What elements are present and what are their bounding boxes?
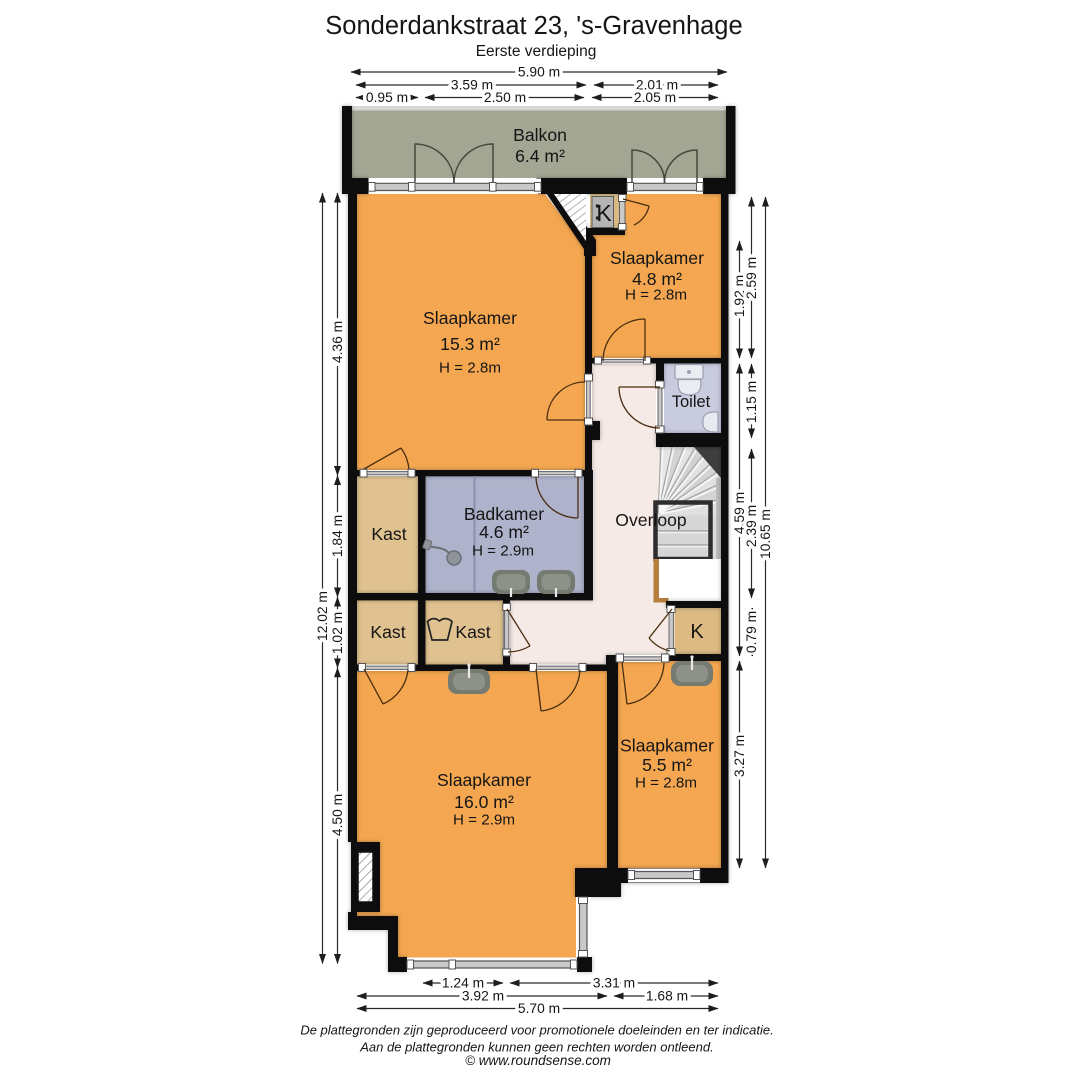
- svg-text:1.15 m: 1.15 m: [744, 381, 759, 423]
- svg-text:Sonderdankstraat 23, 's-Graven: Sonderdankstraat 23, 's-Gravenhage: [325, 12, 742, 40]
- svg-text:1.84 m: 1.84 m: [330, 515, 345, 557]
- svg-text:Toilet: Toilet: [672, 393, 711, 411]
- svg-text:Kast: Kast: [455, 622, 490, 642]
- svg-text:2.50 m: 2.50 m: [484, 90, 526, 105]
- svg-text:5.70 m: 5.70 m: [518, 1001, 560, 1016]
- svg-text:1.02 m: 1.02 m: [330, 612, 345, 654]
- svg-text:Eerste verdieping: Eerste verdieping: [476, 43, 597, 60]
- svg-text:Balkon: Balkon: [513, 125, 567, 145]
- svg-text:Slaapkamer: Slaapkamer: [423, 308, 517, 328]
- svg-text:Kast: Kast: [370, 622, 405, 642]
- svg-text:·0.79 m·: ·0.79 m·: [744, 606, 759, 657]
- svg-text:Kast: Kast: [371, 524, 406, 544]
- svg-text:2.59 m: 2.59 m: [744, 257, 759, 299]
- svg-text:5.5 m²: 5.5 m²: [642, 755, 692, 775]
- svg-text:15.3 m²: 15.3 m²: [440, 334, 500, 354]
- svg-text:1.68 m: 1.68 m: [646, 989, 688, 1004]
- svg-text:3.92 m: 3.92 m: [462, 989, 504, 1004]
- svg-text:3.31 m: 3.31 m: [593, 976, 635, 991]
- svg-text:2.39 m: 2.39 m: [744, 505, 759, 547]
- svg-text:Slaapkamer: Slaapkamer: [437, 770, 531, 790]
- svg-text:K: K: [690, 621, 704, 643]
- svg-text:6.4 m²: 6.4 m²: [515, 146, 565, 166]
- svg-text:2.05 m: 2.05 m: [634, 90, 676, 105]
- svg-text:H = 2.8m: H = 2.8m: [635, 775, 697, 792]
- svg-text:Slaapkamer: Slaapkamer: [620, 736, 714, 756]
- svg-text:K: K: [596, 200, 612, 226]
- svg-text:4.50 m: 4.50 m: [330, 794, 345, 836]
- svg-text:H = 2.9m: H = 2.9m: [453, 812, 515, 829]
- svg-text:Badkamer: Badkamer: [464, 504, 544, 524]
- svg-text:10.65 m: 10.65 m: [758, 509, 773, 559]
- svg-text:De plattegronden zijn geproduc: De plattegronden zijn geproduceerd voor …: [300, 1023, 773, 1038]
- svg-text:0.95 m: 0.95 m: [366, 90, 408, 105]
- svg-text:Slaapkamer: Slaapkamer: [610, 248, 704, 268]
- svg-text:H = 2.8m: H = 2.8m: [625, 287, 687, 304]
- svg-text:H = 2.9m: H = 2.9m: [472, 543, 534, 560]
- svg-text:5.90 m: 5.90 m: [518, 65, 560, 80]
- svg-text:© www.roundsense.com: © www.roundsense.com: [465, 1053, 611, 1068]
- svg-text:16.0 m²: 16.0 m²: [454, 792, 514, 812]
- svg-text:4.6 m²: 4.6 m²: [479, 522, 529, 542]
- svg-text:12.02 m: 12.02 m: [315, 591, 330, 641]
- svg-text:H = 2.8m: H = 2.8m: [439, 360, 501, 377]
- svg-text:4.36 m: 4.36 m: [330, 321, 345, 363]
- svg-text:3.27 m: 3.27 m: [732, 735, 747, 777]
- svg-text:Overloop: Overloop: [615, 510, 687, 530]
